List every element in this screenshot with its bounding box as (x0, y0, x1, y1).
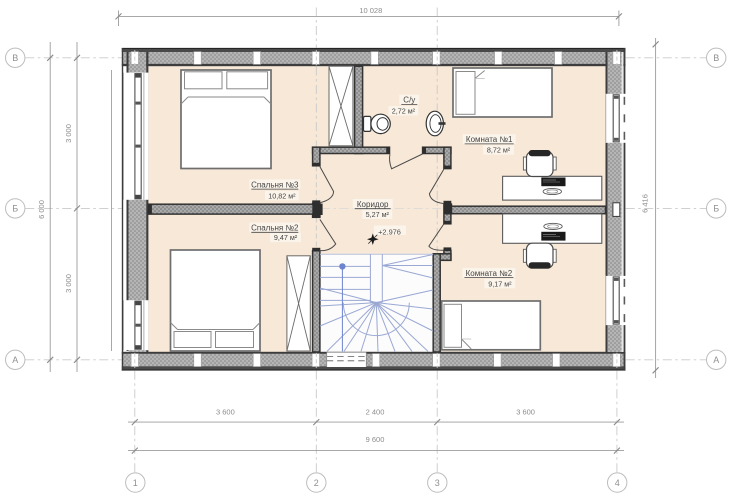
svg-text:3 000: 3 000 (64, 274, 73, 293)
svg-text:3 600: 3 600 (216, 407, 235, 416)
svg-text:9,17 м²: 9,17 м² (488, 279, 512, 288)
svg-text:2: 2 (314, 478, 319, 488)
svg-text:С/у: С/у (403, 96, 415, 105)
svg-text:3: 3 (435, 478, 440, 488)
svg-text:Комната №1: Комната №1 (466, 135, 513, 144)
svg-text:Спальня №3: Спальня №3 (251, 180, 299, 189)
svg-text:Комната №2: Комната №2 (466, 269, 513, 278)
svg-text:10,82 м²: 10,82 м² (268, 191, 296, 200)
svg-text:8,72 м²: 8,72 м² (487, 146, 511, 155)
svg-text:3 600: 3 600 (516, 407, 535, 416)
svg-text:+2.976: +2.976 (378, 227, 401, 236)
svg-text:А: А (713, 355, 719, 365)
svg-text:Б: Б (12, 204, 18, 214)
svg-text:6 416: 6 416 (641, 194, 650, 213)
svg-text:Спальня №2: Спальня №2 (251, 224, 299, 233)
svg-text:3 000: 3 000 (64, 124, 73, 143)
svg-text:4: 4 (615, 478, 620, 488)
svg-text:9,47 м²: 9,47 м² (274, 233, 298, 242)
svg-text:2,72 м²: 2,72 м² (392, 107, 416, 116)
svg-text:10 028: 10 028 (359, 6, 382, 15)
svg-text:Б: Б (713, 204, 719, 214)
svg-text:А: А (12, 355, 18, 365)
svg-text:9 600: 9 600 (366, 435, 385, 444)
svg-text:В: В (713, 53, 719, 63)
svg-text:6 000: 6 000 (37, 200, 46, 219)
svg-text:В: В (12, 53, 18, 63)
svg-text:5,27 м²: 5,27 м² (366, 210, 390, 219)
svg-text:Коридор: Коридор (357, 200, 389, 209)
svg-text:2 400: 2 400 (366, 407, 385, 416)
svg-text:1: 1 (133, 478, 138, 488)
